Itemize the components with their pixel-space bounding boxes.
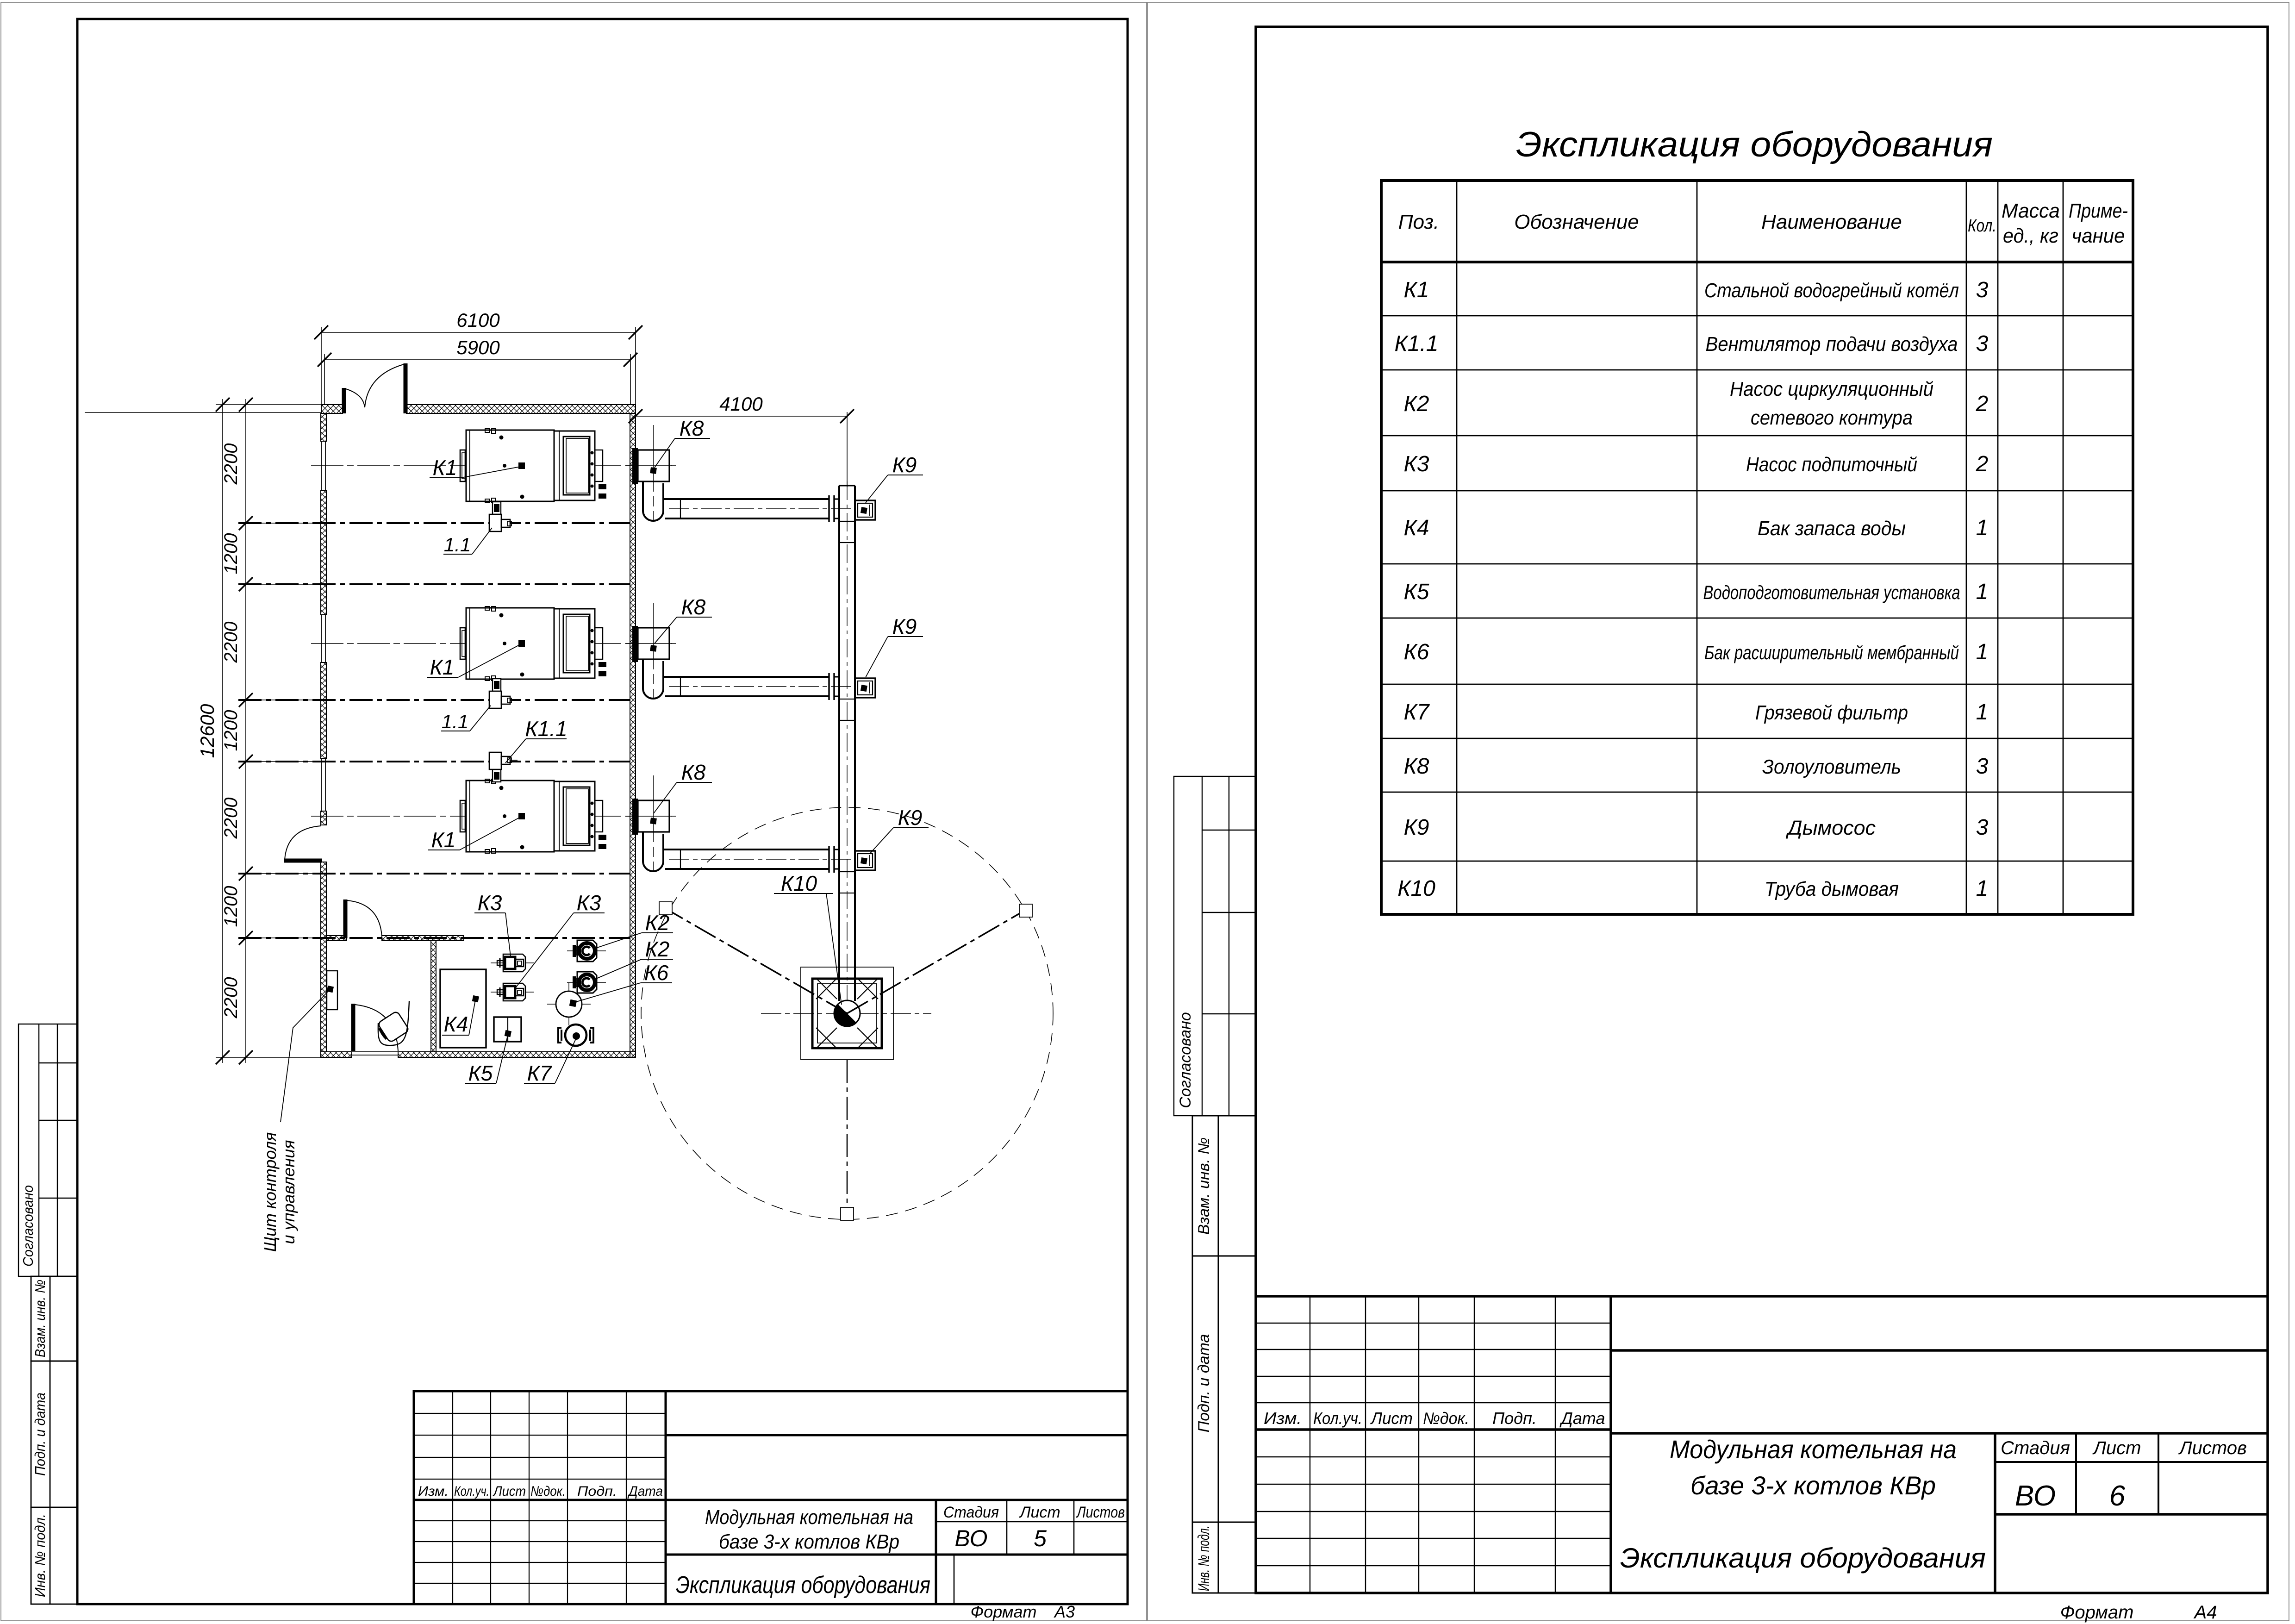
svg-text:2: 2 (1976, 392, 1989, 416)
svg-text:Водоподготовительная установка: Водоподготовительная установка (1703, 581, 1960, 603)
svg-text:Формат: Формат (2060, 1602, 2134, 1623)
svg-text:Изм.: Изм. (1264, 1409, 1302, 1428)
svg-text:К5: К5 (1404, 580, 1429, 604)
svg-text:2200: 2200 (221, 443, 241, 485)
svg-text:6: 6 (2109, 1480, 2126, 1512)
svg-text:К9: К9 (892, 453, 917, 477)
svg-text:чание: чание (2072, 225, 2125, 247)
svg-text:Подп.: Подп. (577, 1484, 617, 1499)
svg-text:Лист: Лист (1019, 1504, 1060, 1521)
svg-text:Кол.уч.: Кол.уч. (454, 1484, 489, 1499)
svg-text:К3: К3 (478, 891, 502, 915)
svg-text:2200: 2200 (221, 622, 241, 663)
svg-text:Взам. инв. №: Взам. инв. № (32, 1280, 48, 1357)
svg-text:Лист: Лист (493, 1484, 526, 1499)
svg-text:К8: К8 (1404, 754, 1429, 779)
svg-text:К1: К1 (431, 828, 456, 852)
svg-text:К1: К1 (1404, 278, 1429, 302)
svg-text:Подп.: Подп. (1492, 1409, 1537, 1428)
svg-text:Листов: Листов (2178, 1438, 2247, 1458)
svg-text:ВО: ВО (954, 1525, 987, 1551)
svg-text:Бак расширительный мембранный: Бак расширительный мембранный (1704, 642, 1959, 663)
svg-text:1: 1 (1976, 640, 1989, 664)
svg-text:12600: 12600 (196, 704, 218, 758)
svg-text:Подп. и дата: Подп. и дата (32, 1393, 48, 1476)
svg-text:К4: К4 (1404, 516, 1429, 540)
svg-text:1: 1 (1976, 876, 1989, 901)
svg-text:Дата: Дата (1559, 1409, 1605, 1428)
svg-text:5900: 5900 (456, 337, 500, 358)
svg-text:Инв. № подл.: Инв. № подл. (32, 1514, 48, 1597)
svg-text:Стадия: Стадия (2001, 1438, 2070, 1458)
svg-text:Стадия: Стадия (943, 1504, 999, 1521)
svg-text:К6: К6 (1404, 640, 1429, 664)
svg-text:Инв. № подл.: Инв. № подл. (1195, 1525, 1213, 1591)
svg-text:№док.: №док. (530, 1484, 566, 1499)
svg-text:К8: К8 (680, 416, 704, 440)
svg-text:Подп. и дата: Подп. и дата (1195, 1334, 1213, 1433)
svg-text:Взам. инв. №: Взам. инв. № (1195, 1137, 1213, 1235)
svg-text:А4: А4 (2194, 1602, 2217, 1623)
svg-text:К9: К9 (898, 806, 923, 830)
svg-text:базе 3-х котлов КВр: базе 3-х котлов КВр (1690, 1471, 1936, 1500)
svg-text:Труба дымовая: Труба дымовая (1765, 878, 1899, 900)
svg-text:Масса: Масса (2002, 200, 2060, 222)
svg-text:К5: К5 (468, 1061, 493, 1085)
svg-text:Щит контроля: Щит контроля (261, 1132, 280, 1252)
svg-text:Кол.: Кол. (1968, 216, 1996, 236)
svg-text:1200: 1200 (221, 886, 241, 927)
svg-text:К1.1: К1.1 (1394, 331, 1438, 356)
svg-text:Насос подпиточный: Насос подпиточный (1746, 453, 1917, 476)
svg-text:К10: К10 (781, 871, 817, 895)
svg-text:Бак запаса воды: Бак запаса воды (1758, 517, 1906, 540)
svg-text:1: 1 (1976, 580, 1989, 604)
svg-text:К2: К2 (645, 937, 670, 961)
svg-text:Согласовано: Согласовано (20, 1185, 36, 1267)
svg-text:3: 3 (1976, 331, 1989, 356)
svg-text:Кол.уч.: Кол.уч. (1313, 1409, 1362, 1428)
svg-text:№док.: №док. (1423, 1409, 1469, 1428)
svg-text:Наименование: Наименование (1761, 211, 1902, 233)
svg-text:сетевого контура: сетевого контура (1751, 406, 1913, 429)
svg-text:А3: А3 (1054, 1602, 1075, 1621)
svg-text:3: 3 (1976, 278, 1989, 302)
svg-text:Обозначение: Обозначение (1514, 211, 1639, 233)
svg-text:Лист: Лист (1370, 1409, 1413, 1428)
svg-text:Приме-: Приме- (2069, 200, 2128, 222)
svg-text:Грязевой фильтр: Грязевой фильтр (1755, 701, 1908, 724)
svg-text:3: 3 (1976, 754, 1989, 779)
svg-text:Модульная котельная на: Модульная котельная на (1670, 1435, 1957, 1464)
svg-text:К7: К7 (1404, 700, 1430, 725)
svg-text:К2: К2 (1404, 392, 1429, 416)
svg-text:Согласовано: Согласовано (1177, 1012, 1194, 1108)
svg-text:Дата: Дата (627, 1484, 663, 1499)
svg-text:К8: К8 (681, 595, 706, 619)
svg-text:1.1: 1.1 (444, 534, 471, 556)
svg-text:Экспликация оборудования: Экспликация оборудования (676, 1572, 930, 1599)
svg-text:1: 1 (1976, 516, 1989, 540)
svg-text:2: 2 (1976, 452, 1989, 476)
svg-text:Экспликация оборудования: Экспликация оборудования (1516, 125, 1993, 164)
svg-text:ВО: ВО (2015, 1480, 2056, 1512)
svg-text:1: 1 (1976, 700, 1989, 725)
svg-text:К9: К9 (892, 614, 917, 638)
svg-text:Дымосос: Дымосос (1785, 817, 1876, 839)
svg-text:3: 3 (1976, 815, 1989, 840)
svg-text:4100: 4100 (719, 393, 763, 415)
svg-text:К2: К2 (645, 911, 670, 935)
svg-text:1200: 1200 (221, 710, 241, 751)
svg-text:К6: К6 (644, 961, 669, 985)
svg-text:2200: 2200 (221, 977, 241, 1019)
svg-text:Насос циркуляционный: Насос циркуляционный (1730, 378, 1933, 400)
svg-text:ед., кг: ед., кг (2003, 225, 2058, 247)
svg-text:базе 3-х котлов КВр: базе 3-х котлов КВр (719, 1530, 899, 1553)
svg-text:5: 5 (1034, 1525, 1047, 1551)
svg-text:Вентилятор подачи воздуха: Вентилятор подачи воздуха (1706, 333, 1958, 356)
svg-text:К8: К8 (681, 760, 706, 784)
svg-text:1200: 1200 (221, 533, 241, 575)
svg-text:Поз.: Поз. (1398, 211, 1440, 233)
svg-text:Экспликация оборудования: Экспликация оборудования (1620, 1543, 1986, 1574)
svg-text:Изм.: Изм. (418, 1484, 449, 1499)
svg-text:1.1: 1.1 (442, 711, 468, 732)
svg-text:2200: 2200 (221, 798, 241, 839)
svg-text:и управления: и управления (279, 1140, 298, 1244)
svg-text:К3: К3 (1404, 452, 1429, 476)
svg-text:К1.1: К1.1 (525, 717, 567, 741)
svg-text:К1: К1 (430, 655, 455, 679)
svg-text:К9: К9 (1404, 815, 1429, 840)
svg-text:Листов: Листов (1076, 1504, 1125, 1521)
svg-text:Лист: Лист (2092, 1438, 2141, 1458)
svg-text:К1: К1 (433, 456, 457, 480)
svg-text:Золоуловитель: Золоуловитель (1762, 756, 1901, 778)
svg-text:К10: К10 (1397, 876, 1435, 901)
svg-text:К7: К7 (527, 1061, 552, 1085)
svg-text:К3: К3 (577, 891, 601, 915)
svg-text:6100: 6100 (456, 309, 500, 331)
svg-text:Модульная котельная на: Модульная котельная на (705, 1506, 913, 1529)
svg-text:Стальной водогрейный котёл: Стальной водогрейный котёл (1704, 279, 1959, 302)
svg-text:Формат: Формат (971, 1602, 1037, 1621)
svg-text:К4: К4 (444, 1012, 468, 1036)
